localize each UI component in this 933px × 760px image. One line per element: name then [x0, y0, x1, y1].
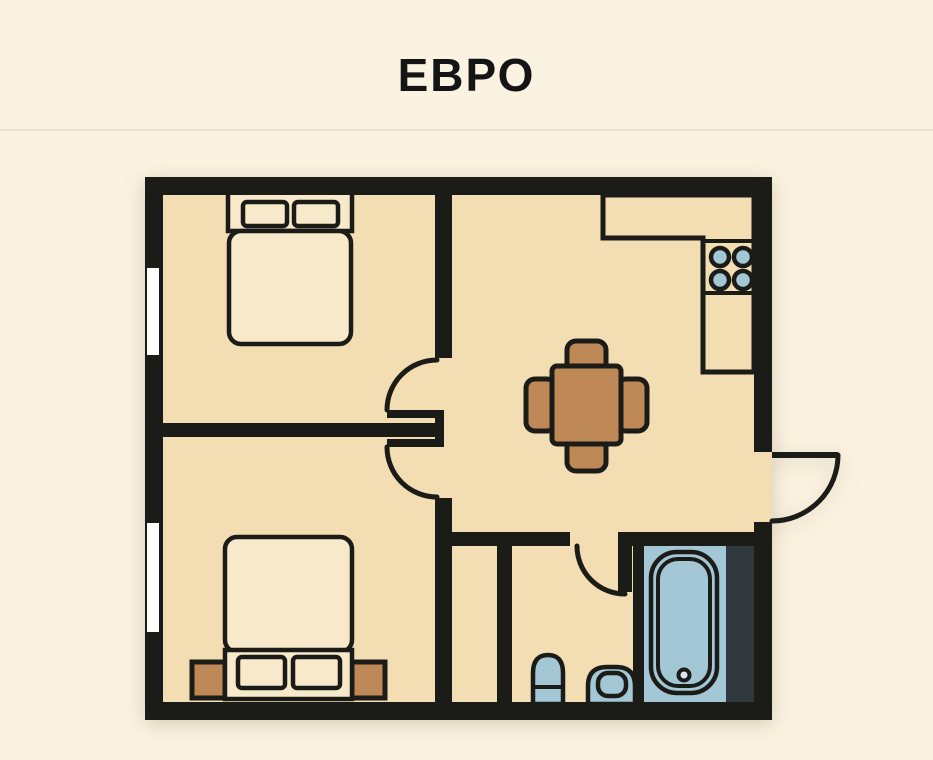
toilet	[588, 667, 635, 704]
bed-top-pillow-left	[243, 202, 287, 226]
bedroom-bottom-window	[147, 523, 159, 632]
bed-top-pillow-right	[294, 202, 338, 226]
bed-top-blanket	[229, 231, 351, 344]
bathtub-drain-icon	[679, 670, 690, 681]
bed-bottom-pillow-left	[238, 657, 285, 688]
wall-right-lower	[754, 522, 772, 720]
dining-table	[552, 366, 621, 444]
page: ЕВРО	[0, 0, 933, 760]
nightstand-left	[192, 662, 225, 698]
wall-left	[145, 177, 163, 720]
wall-top	[145, 177, 772, 195]
wall-tub-divider	[633, 546, 644, 702]
wall-niche-right	[497, 532, 512, 702]
sink	[533, 655, 563, 704]
bathroom-door-leaf	[618, 532, 632, 592]
wall-bottom	[145, 702, 772, 720]
bed-bottom-blanket	[225, 537, 352, 652]
wall-south-right	[618, 532, 754, 546]
entrance-gap-floor	[754, 452, 772, 522]
nightstand-right	[352, 662, 385, 698]
bathtub-area	[644, 546, 754, 702]
wall-middle-upper	[435, 195, 452, 358]
bedroom-top-window	[147, 268, 159, 355]
entrance-door-arc	[772, 455, 838, 521]
bed-top	[228, 190, 352, 344]
dark-service-panel	[726, 546, 754, 702]
bedroom-top-door-leaf	[387, 410, 444, 418]
sink-bowl	[533, 655, 563, 704]
entrance-door-leaf	[772, 452, 838, 458]
wall-between-bedrooms	[163, 423, 439, 437]
floor-plan	[0, 0, 933, 760]
wall-middle-lower	[435, 498, 452, 702]
bed-bottom-pillow-right	[293, 657, 340, 688]
bedroom-bottom-door-leaf	[387, 439, 444, 447]
toilet-seat	[598, 673, 626, 696]
wall-right-upper	[754, 177, 772, 452]
